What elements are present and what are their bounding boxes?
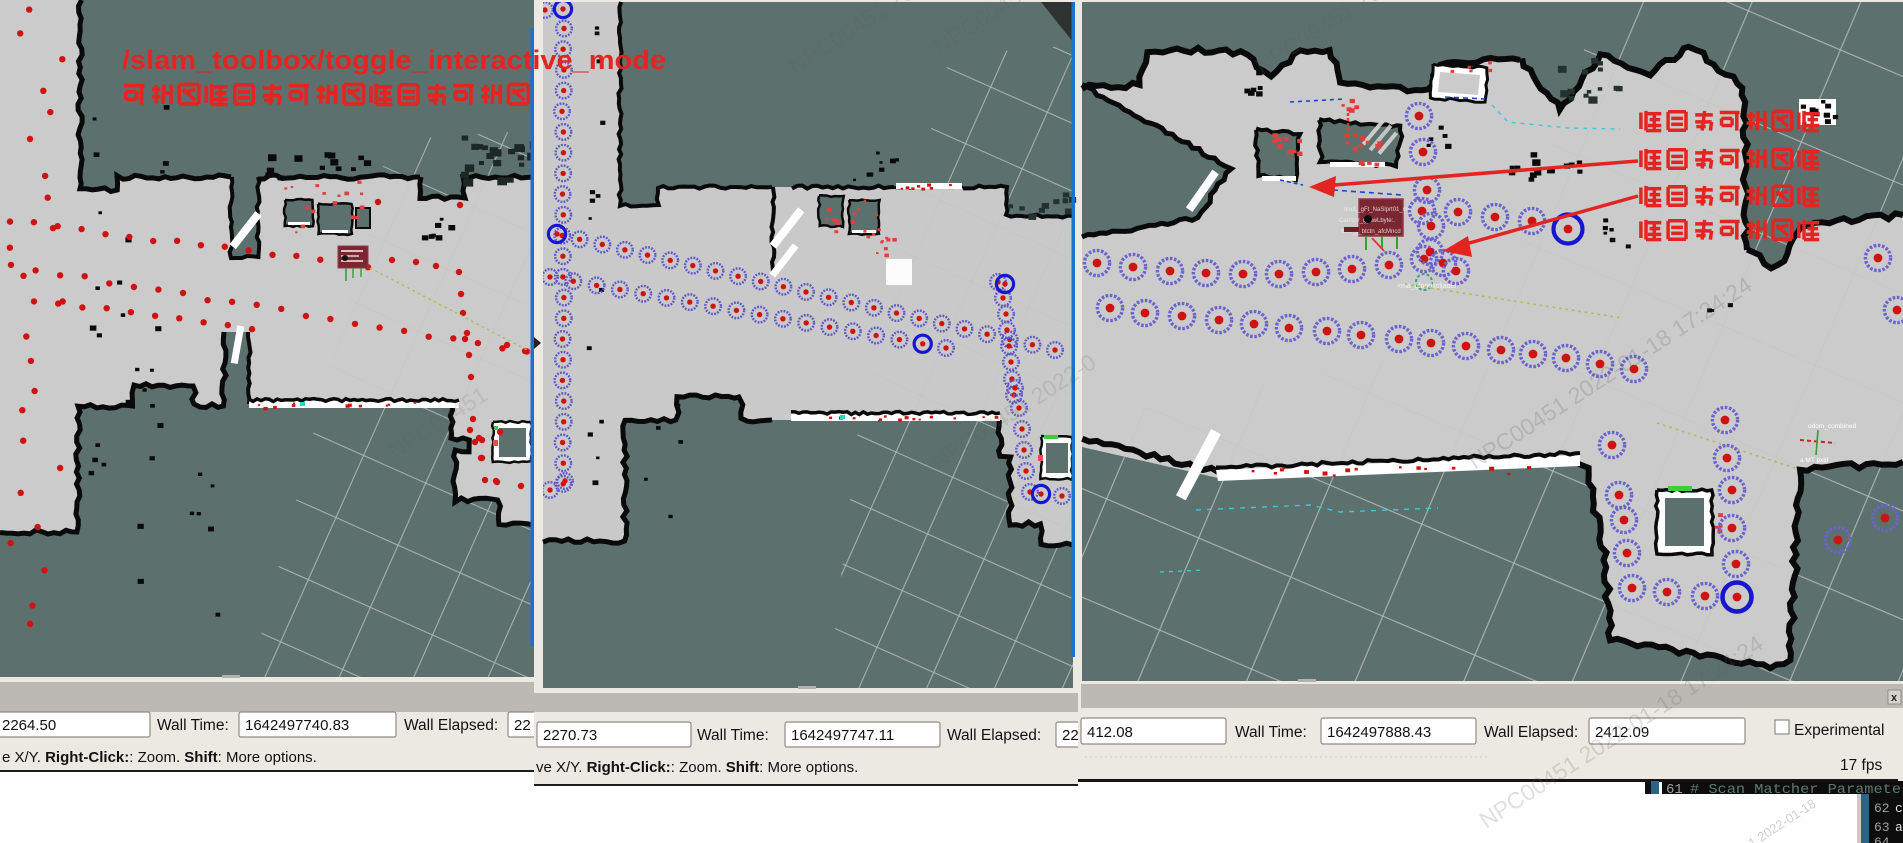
svg-text:1642497888.43: 1642497888.43 xyxy=(1327,724,1431,741)
svg-text:412.08: 412.08 xyxy=(1087,724,1133,741)
svg-text:Experimental: Experimental xyxy=(1794,722,1884,739)
svg-text:a: a xyxy=(1895,820,1903,835)
svg-text:1642497747.11: 1642497747.11 xyxy=(791,727,894,744)
svg-text:Wall Time:: Wall Time: xyxy=(1235,724,1307,741)
svg-text:e X/Y. Right-Click:: Zoom. Shi: e X/Y. Right-Click:: Zoom. Shift: More o… xyxy=(2,749,317,766)
svg-text:64: 64 xyxy=(1874,835,1890,843)
svg-text:c: c xyxy=(1895,801,1903,816)
svg-text:/slam_toolbox/toggle_interacti: /slam_toolbox/toggle_interactive_mode xyxy=(122,45,666,75)
svg-text:Wall Time:: Wall Time: xyxy=(697,727,769,744)
svg-text:2264.50: 2264.50 xyxy=(2,717,56,734)
svg-text:22: 22 xyxy=(514,717,531,734)
svg-text:61: 61 xyxy=(1666,782,1683,798)
svg-text:Wall Elapsed:: Wall Elapsed: xyxy=(404,717,498,734)
svg-text:Wall Time:: Wall Time: xyxy=(157,717,229,734)
svg-text:1642497740.83: 1642497740.83 xyxy=(245,717,349,734)
svg-text:odom_combined: odom_combined xyxy=(1808,423,1856,430)
svg-text:17 fps: 17 fps xyxy=(1840,757,1882,774)
svg-text:Wall Elapsed:: Wall Elapsed: xyxy=(947,727,1041,744)
svg-text:62: 62 xyxy=(1874,801,1890,816)
svg-text:63: 63 xyxy=(1874,820,1890,835)
svg-text:1 2022-01-18: 1 2022-01-18 xyxy=(1745,796,1818,843)
svg-text:x: x xyxy=(1891,692,1898,704)
svg-text:ve X/Y. Right-Click:: Zoom. Sh: ve X/Y. Right-Click:: Zoom. Shift: More … xyxy=(536,759,858,776)
svg-text:22: 22 xyxy=(1062,727,1079,744)
svg-text:Wall Elapsed:: Wall Elapsed: xyxy=(1484,724,1578,741)
svg-text:ImuL_gFt_NaSlprt01_rsd: ImuL_gFt_NaSlprt01_rsd xyxy=(1344,207,1411,213)
svg-text:a MT pxld: a MT pxld xyxy=(1800,457,1829,464)
svg-text:2270.73: 2270.73 xyxy=(543,727,597,744)
